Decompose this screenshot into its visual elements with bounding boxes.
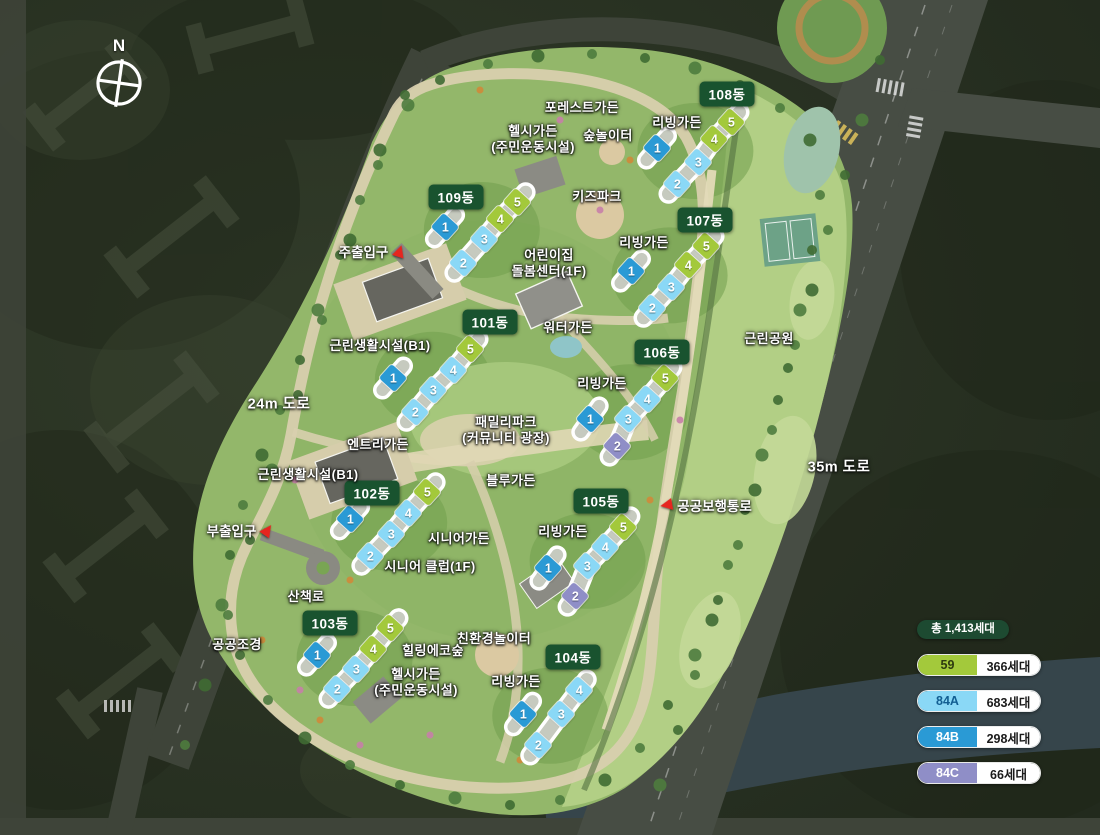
unit-chip: 3: [470, 225, 498, 253]
area-label: 엔트리가든: [347, 437, 409, 453]
unit-chip: 2: [561, 582, 589, 610]
area-label: 산책로: [287, 589, 324, 605]
unit-chip: 3: [342, 655, 370, 683]
building-badge: 108동: [700, 82, 755, 107]
unit-chip: 2: [524, 731, 552, 759]
area-label: 리빙가든: [491, 674, 540, 690]
unit-chip: 2: [603, 432, 631, 460]
unit-chip: 1: [336, 505, 364, 533]
area-label: 헬시가든 (주민운동시설): [491, 123, 575, 154]
unit-number: 2: [649, 301, 656, 315]
area-label: 시니어가든: [428, 531, 490, 547]
unit-number: 3: [625, 412, 632, 426]
unit-chip: 5: [456, 335, 484, 363]
unit-number: 2: [572, 589, 579, 603]
unit-chip: 3: [684, 148, 712, 176]
area-label: 헬시가든 (주민운동시설): [374, 666, 458, 697]
legend-row: 84C66세대: [917, 762, 1041, 784]
area-label: 어린이집 돌봄센터(1F): [512, 247, 587, 278]
building-badge: 103동: [303, 611, 358, 636]
unit-chip: 1: [576, 405, 604, 433]
unit-number: 3: [695, 155, 702, 169]
area-label: 키즈파크: [572, 189, 621, 205]
unit-chip: 2: [638, 294, 666, 322]
area-label: 시니어 클럽(1F): [384, 559, 475, 575]
area-label: 친환경놀이터: [457, 631, 531, 647]
unit-number: 5: [662, 371, 669, 385]
unit-chip: 2: [449, 249, 477, 277]
unit-chip: 1: [617, 257, 645, 285]
unit-number: 1: [654, 141, 661, 155]
legend-count: 683세대: [977, 691, 1040, 711]
entrance-arrow-icon: [659, 498, 673, 512]
legend-row: 59366세대: [917, 654, 1041, 676]
unit-number: 3: [388, 527, 395, 541]
unit-number: 3: [481, 232, 488, 246]
unit-chip: 4: [439, 356, 467, 384]
area-label: 리빙가든: [577, 376, 626, 392]
unit-chip: 3: [657, 273, 685, 301]
unit-number: 4: [685, 258, 692, 272]
unit-number: 1: [545, 561, 552, 575]
unit-chip: 1: [534, 554, 562, 582]
unit-chip: 5: [692, 232, 720, 260]
unit-number: 2: [334, 682, 341, 696]
unit-number: 4: [644, 392, 651, 406]
unit-chip: 1: [509, 700, 537, 728]
road-label: 24m 도로: [248, 393, 311, 414]
legend-row: 84A683세대: [917, 690, 1041, 712]
unit-number: 2: [412, 405, 419, 419]
unit-chip: 4: [591, 533, 619, 561]
entrance-arrow-icon: [259, 522, 276, 539]
area-label: 힐링에코숲: [402, 643, 464, 659]
area-label: 블루가든: [486, 473, 535, 489]
area-label: 근린생활시설(B1): [329, 338, 430, 354]
unit-number: 3: [668, 280, 675, 294]
unit-number: 1: [347, 512, 354, 526]
legend-panel: 총 1,413세대 59366세대84A683세대84B298세대84C66세대: [917, 620, 1045, 798]
unit-number: 4: [370, 642, 377, 656]
unit-chip: 5: [413, 478, 441, 506]
unit-chip: 1: [643, 134, 671, 162]
unit-chip: 3: [419, 376, 447, 404]
entrance-text: 주출입구: [339, 241, 389, 261]
area-label: 숲놀이터: [583, 128, 632, 144]
unit-number: 1: [587, 412, 594, 426]
building-badge: 107동: [678, 208, 733, 233]
unit-chip: 5: [651, 364, 679, 392]
area-label: 리빙가든: [619, 235, 668, 251]
unit-chip: 2: [356, 542, 384, 570]
unit-number: 3: [558, 707, 565, 721]
legend-count: 66세대: [977, 763, 1040, 783]
unit-number: 1: [442, 220, 449, 234]
area-label: 근린생활시설(B1): [257, 467, 358, 483]
legend-count: 366세대: [977, 655, 1040, 675]
unit-chip: 3: [573, 552, 601, 580]
unit-number: 1: [520, 707, 527, 721]
unit-chip: 3: [547, 700, 575, 728]
entrance-label: 공공보행통로: [660, 495, 752, 515]
unit-number: 5: [467, 342, 474, 356]
area-label: 워터가든: [543, 320, 592, 336]
legend-type: 59: [918, 655, 977, 675]
unit-number: 2: [674, 177, 681, 191]
entrance-text: 부출입구: [207, 520, 257, 540]
building-badge: 105동: [574, 489, 629, 514]
unit-chip: 3: [377, 520, 405, 548]
unit-chip: 3: [614, 405, 642, 433]
unit-number: 5: [387, 621, 394, 635]
unit-number: 4: [405, 506, 412, 520]
unit-number: 5: [424, 485, 431, 499]
unit-chip: 1: [303, 641, 331, 669]
legend-rows: 59366세대84A683세대84B298세대84C66세대: [917, 654, 1045, 784]
unit-number: 2: [535, 738, 542, 752]
legend-type: 84C: [918, 763, 977, 783]
building-badge: 106동: [635, 340, 690, 365]
legend-total-badge: 총 1,413세대: [917, 620, 1009, 639]
area-label: 포레스트가든: [545, 100, 619, 116]
area-label: 공공조경: [212, 637, 261, 653]
unit-number: 2: [614, 439, 621, 453]
unit-number: 4: [450, 363, 457, 377]
unit-chip: 5: [376, 614, 404, 642]
entrance-text: 공공보행통로: [677, 495, 752, 515]
unit-number: 4: [711, 132, 718, 146]
unit-number: 4: [602, 540, 609, 554]
entrance-label: 주출입구: [339, 241, 406, 261]
unit-number: 1: [390, 371, 397, 385]
unit-chip: 2: [663, 170, 691, 198]
unit-chip: 4: [565, 676, 593, 704]
unit-chip: 2: [323, 675, 351, 703]
road-label: 35m 도로: [808, 456, 871, 477]
legend-type: 84B: [918, 727, 977, 747]
building-badge: 101동: [463, 310, 518, 335]
unit-chip: 4: [633, 385, 661, 413]
unit-number: 3: [430, 383, 437, 397]
unit-number: 2: [367, 549, 374, 563]
unit-chip: 4: [359, 635, 387, 663]
entrance-arrow-icon: [392, 243, 407, 258]
unit-number: 2: [460, 256, 467, 270]
unit-number: 3: [353, 662, 360, 676]
unit-number: 4: [576, 683, 583, 697]
entrance-label: 부출입구: [207, 520, 274, 540]
compass-icon: [93, 57, 145, 109]
unit-chip: 1: [431, 213, 459, 241]
legend-type: 84A: [918, 691, 977, 711]
north-label: N: [92, 36, 146, 56]
unit-chip: 5: [609, 513, 637, 541]
site-plan-map: N 12345101동12345102동12345103동1234104동123…: [0, 0, 1100, 835]
legend-count: 298세대: [977, 727, 1040, 747]
area-label: 패밀리파크 (커뮤니티 광장): [462, 414, 550, 445]
unit-number: 5: [703, 239, 710, 253]
unit-number: 1: [628, 264, 635, 278]
unit-number: 5: [620, 520, 627, 534]
building-badge: 102동: [345, 481, 400, 506]
unit-number: 1: [314, 648, 321, 662]
area-label: 리빙가든: [538, 524, 587, 540]
unit-number: 4: [497, 212, 504, 226]
compass: N: [92, 36, 146, 114]
building-badge: 109동: [429, 185, 484, 210]
unit-chip: 1: [379, 364, 407, 392]
unit-number: 5: [514, 195, 521, 209]
unit-chip: 2: [401, 398, 429, 426]
building-badge: 104동: [546, 645, 601, 670]
area-label: 리빙가든: [652, 115, 701, 131]
unit-number: 3: [584, 559, 591, 573]
legend-row: 84B298세대: [917, 726, 1041, 748]
unit-number: 5: [728, 115, 735, 129]
area-label: 근린공원: [744, 331, 793, 347]
unit-chip: 4: [674, 251, 702, 279]
